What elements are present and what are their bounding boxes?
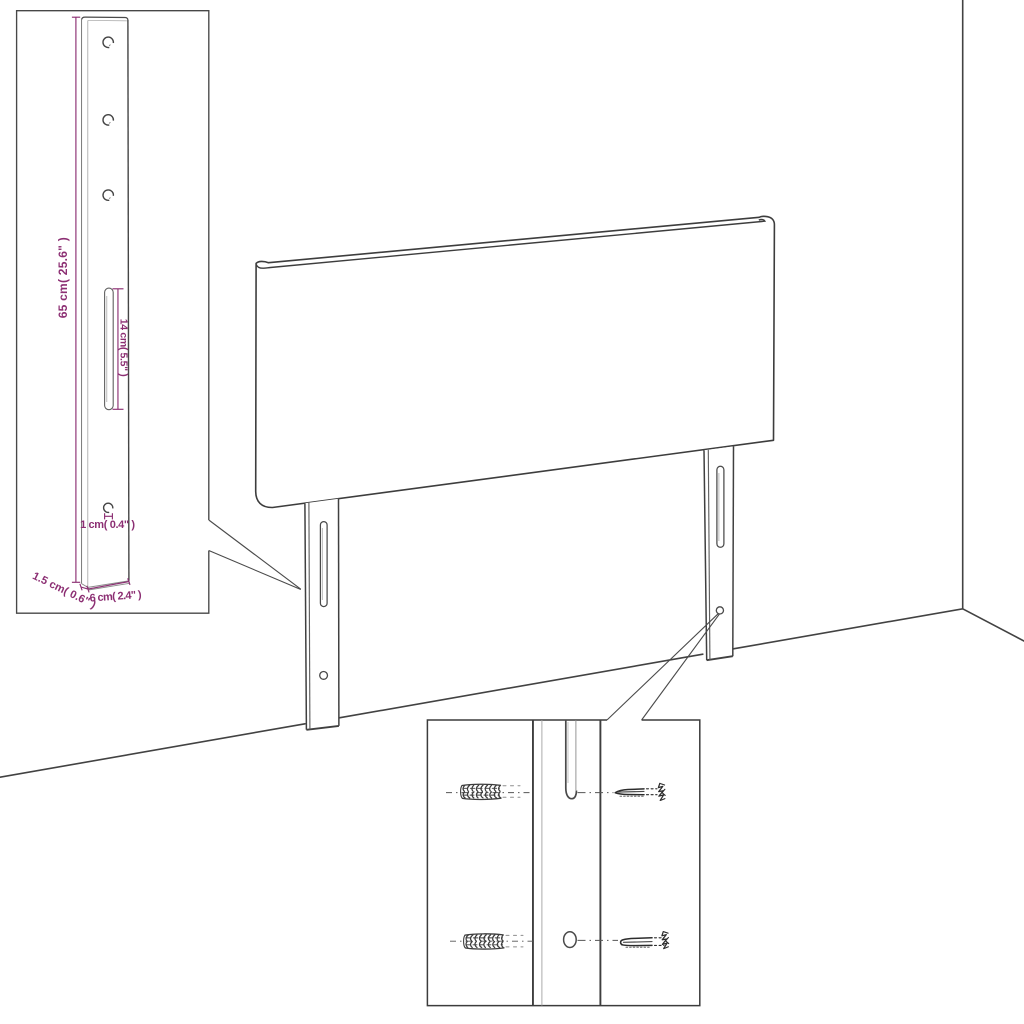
svg-text:1 cm( 0.4" ): 1 cm( 0.4" ): [80, 519, 135, 531]
svg-text:65 cm( 25.6" ): 65 cm( 25.6" ): [56, 237, 70, 318]
svg-text:14 cm( 5.5" ): 14 cm( 5.5" ): [117, 319, 129, 377]
